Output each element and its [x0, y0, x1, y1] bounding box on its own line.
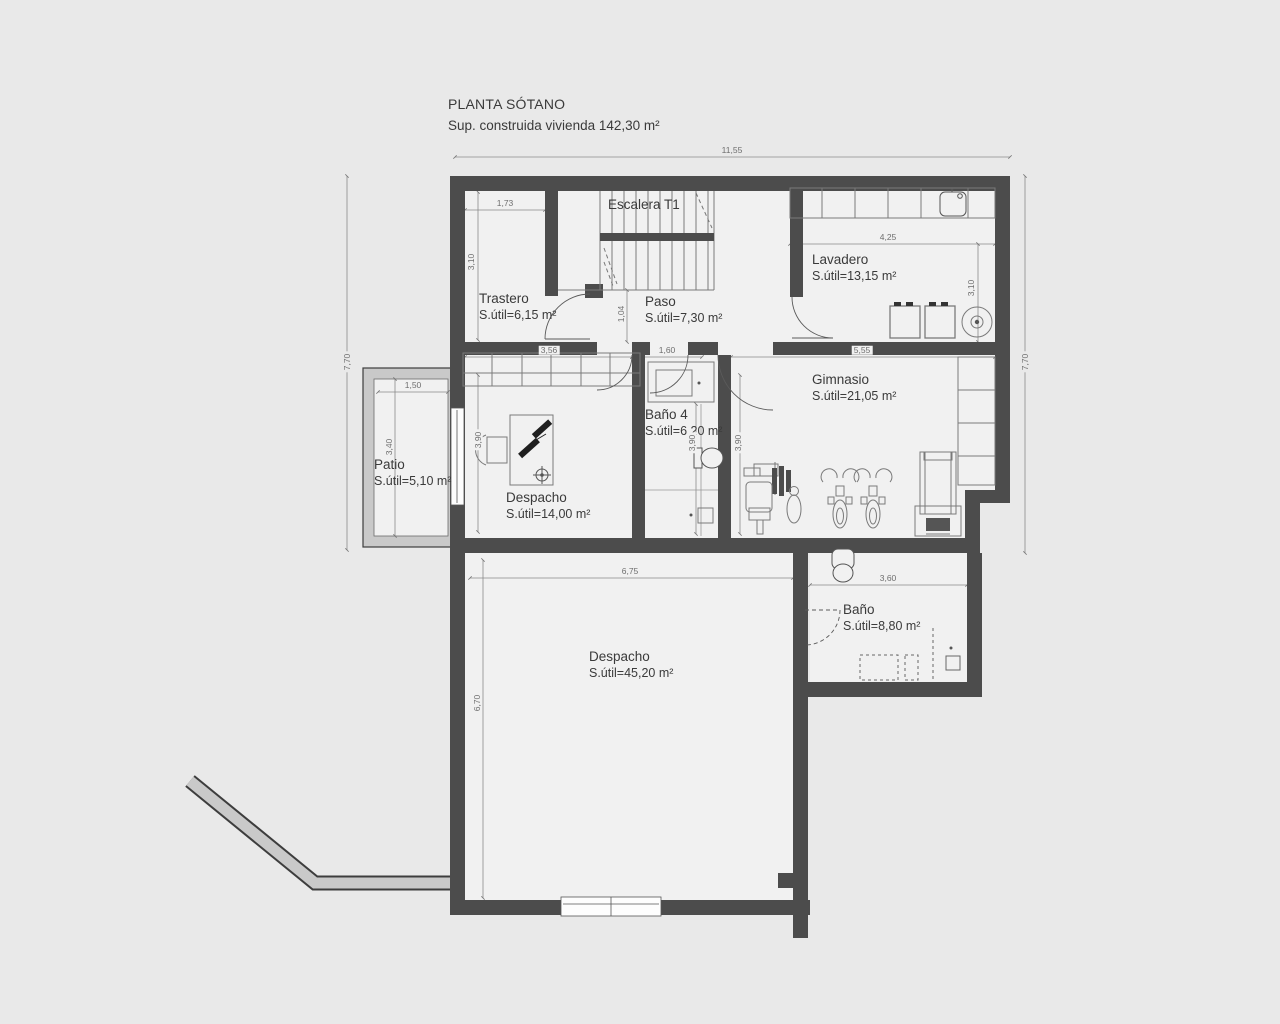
room-paso-area: S.útil=7,30 m²	[645, 310, 722, 326]
dim-gimnasio-height: 3,90	[734, 433, 743, 454]
room-despacho2-name: Despacho	[589, 648, 673, 665]
dim-bano4-height: 3,90	[688, 433, 697, 454]
room-bano-name: Baño	[843, 601, 920, 618]
room-bano-area: S.útil=8,80 m²	[843, 618, 920, 634]
ramp-retaining-wall	[190, 781, 451, 883]
dim-bano4-width: 1,60	[657, 346, 678, 355]
dim-left-height: 7,70	[343, 352, 352, 373]
room-paso: Paso S.útil=7,30 m²	[645, 293, 722, 326]
dim-despacho2-width: 6,75	[620, 567, 641, 576]
room-trastero: Trastero S.útil=6,15 m²	[479, 290, 556, 323]
plan-title: PLANTA SÓTANO	[448, 96, 565, 112]
room-despacho2-area: S.útil=45,20 m²	[589, 665, 673, 681]
stair-label: Escalera T1	[608, 197, 680, 212]
dim-patio-width: 1,50	[403, 381, 424, 390]
room-lavadero-area: S.útil=13,15 m²	[812, 268, 896, 284]
room-gimnasio-area: S.útil=21,05 m²	[812, 388, 896, 404]
room-despacho2: Despacho S.útil=45,20 m²	[589, 648, 673, 681]
dim-despacho2-height: 6,70	[473, 693, 482, 714]
room-patio-area: S.útil=5,10 m²	[374, 473, 451, 489]
dim-lavadero-width: 4,25	[878, 233, 899, 242]
dim-despacho1-width: 3,56	[539, 346, 560, 355]
room-bano4-name: Baño 4	[645, 406, 722, 423]
room-bano: Baño S.útil=8,80 m²	[843, 601, 920, 634]
dim-paso-height: 1,04	[617, 304, 626, 325]
room-despacho1: Despacho S.útil=14,00 m²	[506, 489, 590, 522]
floor-plan-drawing	[0, 0, 1280, 1024]
room-despacho1-area: S.útil=14,00 m²	[506, 506, 590, 522]
dim-lavadero-height: 3,10	[967, 278, 976, 299]
room-bano4: Baño 4 S.útil=6,20 m²	[645, 406, 722, 439]
room-despacho1-name: Despacho	[506, 489, 590, 506]
room-patio-name: Patio	[374, 456, 451, 473]
dim-trastero-height: 3,10	[467, 252, 476, 273]
room-patio: Patio S.útil=5,10 m²	[374, 456, 451, 489]
plan-subtitle: Sup. construida vivienda 142,30 m²	[448, 118, 660, 133]
room-trastero-name: Trastero	[479, 290, 556, 307]
floor-plan-canvas: PLANTA SÓTANO Sup. construida vivienda 1…	[0, 0, 1280, 1024]
dim-despacho1-height: 3,90	[474, 430, 483, 451]
room-gimnasio: Gimnasio S.útil=21,05 m²	[812, 371, 896, 404]
room-trastero-area: S.útil=6,15 m²	[479, 307, 556, 323]
room-gimnasio-name: Gimnasio	[812, 371, 896, 388]
dim-right-height: 7,70	[1021, 352, 1030, 373]
dim-bano-width: 3,60	[878, 574, 899, 583]
room-lavadero: Lavadero S.útil=13,15 m²	[812, 251, 896, 284]
room-paso-name: Paso	[645, 293, 722, 310]
room-bano4-area: S.útil=6,20 m²	[645, 423, 722, 439]
patio-window	[451, 408, 464, 505]
room-lavadero-name: Lavadero	[812, 251, 896, 268]
dim-overall-width: 11,55	[720, 146, 745, 155]
dim-gimnasio-width: 5,55	[852, 346, 873, 355]
dim-trastero-width: 1,73	[495, 199, 516, 208]
dim-patio-height: 3,40	[385, 437, 394, 458]
despacho-window	[561, 897, 661, 916]
